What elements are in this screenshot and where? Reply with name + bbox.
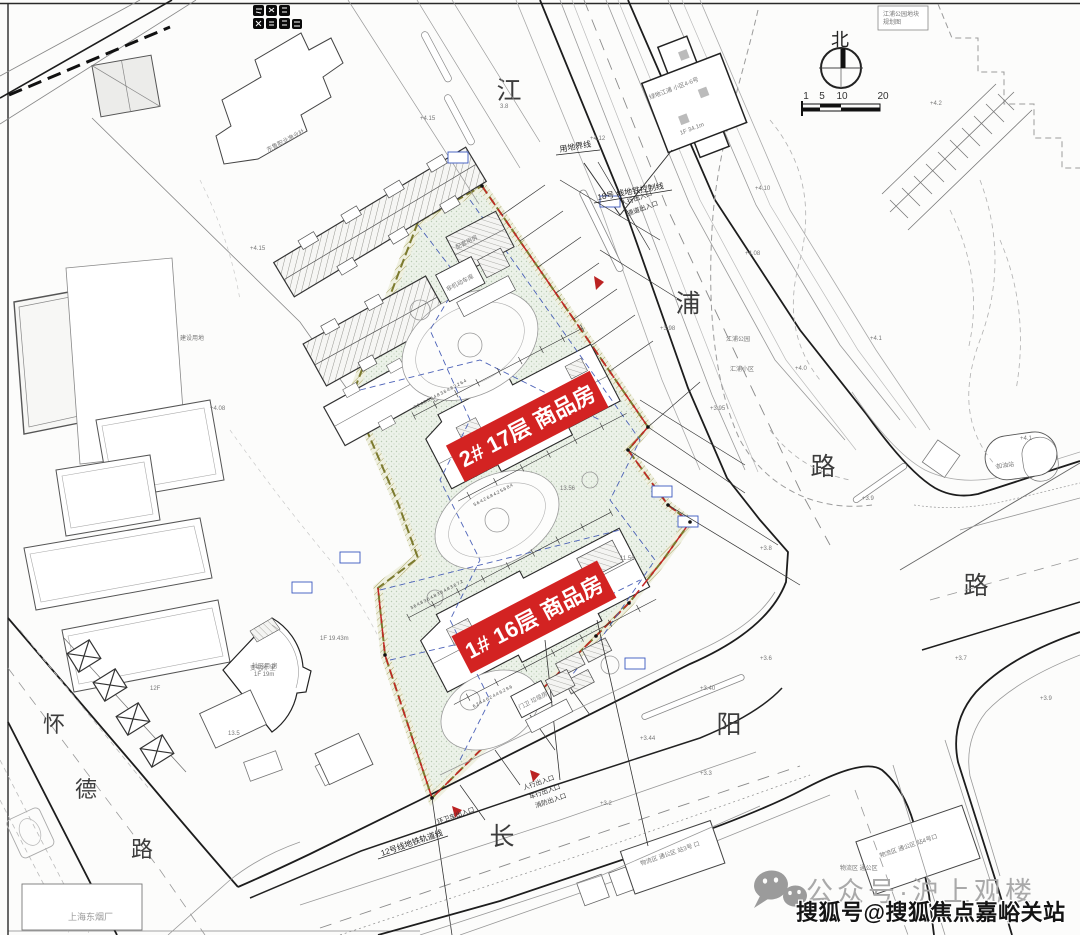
svg-text:+3.98: +3.98 (660, 326, 676, 332)
svg-text:+3.44: +3.44 (640, 736, 656, 742)
svg-text:+3.6: +3.6 (760, 656, 773, 662)
svg-text:10: 10 (836, 91, 848, 102)
svg-text:+4.0: +4.0 (795, 366, 808, 372)
svg-text:江浦公园: 江浦公园 (726, 335, 750, 343)
svg-text:5: 5 (819, 91, 825, 102)
svg-text:+4.10: +4.10 (755, 186, 771, 192)
svg-text:+3.3: +3.3 (700, 771, 713, 777)
svg-text:路: 路 (963, 572, 988, 600)
svg-text:+3.7: +3.7 (955, 656, 968, 662)
svg-text:1: 1 (803, 91, 809, 102)
svg-text:德: 德 (75, 777, 97, 802)
svg-text:搜狐号@搜狐焦点嘉峪关站: 搜狐号@搜狐焦点嘉峪关站 (796, 900, 1065, 925)
svg-text:汇浦小区: 汇浦小区 (730, 365, 754, 373)
svg-text:怀: 怀 (43, 712, 65, 737)
svg-text:变电所 里: 变电所 里 (250, 664, 276, 672)
svg-text:建设用地: 建设用地 (180, 334, 204, 342)
svg-text:+3.8: +3.8 (760, 546, 773, 552)
svg-text:+3.2: +3.2 (600, 801, 613, 807)
svg-text:+3.40: +3.40 (700, 686, 716, 692)
svg-text:物流区 通公区: 物流区 通公区 (840, 864, 878, 872)
svg-text:路: 路 (810, 453, 835, 481)
svg-text:1F 19m: 1F 19m (254, 672, 274, 678)
svg-text:江: 江 (496, 77, 521, 105)
svg-text:江浦公园地块: 江浦公园地块 (883, 10, 919, 18)
svg-text:浦: 浦 (675, 290, 700, 318)
svg-text:+4.08: +4.08 (210, 406, 226, 412)
svg-text:路: 路 (131, 837, 153, 862)
svg-text:3.8: 3.8 (500, 104, 509, 110)
svg-text:上海东烟厂: 上海东烟厂 (68, 911, 113, 922)
svg-text:+4.08: +4.08 (745, 251, 761, 257)
svg-text:+4.15: +4.15 (250, 246, 266, 252)
svg-text:长: 长 (489, 823, 514, 851)
svg-text:13.5: 13.5 (228, 731, 240, 737)
svg-text:12F: 12F (150, 686, 161, 692)
svg-text:规划图: 规划图 (883, 18, 901, 26)
svg-text:+3.9: +3.9 (862, 496, 875, 502)
svg-text:1F 19.43m: 1F 19.43m (320, 636, 349, 642)
svg-text:阳: 阳 (716, 712, 741, 739)
svg-text:+3.95: +3.95 (710, 406, 726, 412)
svg-text:+4.12: +4.12 (590, 136, 606, 142)
svg-text:+4.1: +4.1 (1020, 436, 1033, 442)
svg-text:11.56: 11.56 (620, 556, 635, 562)
svg-text:+3.9: +3.9 (1040, 696, 1053, 702)
svg-text:北: 北 (831, 30, 849, 50)
svg-text:13.56: 13.56 (560, 486, 576, 492)
svg-text:+4.15: +4.15 (420, 116, 436, 122)
svg-text:20: 20 (877, 91, 889, 102)
svg-text:+4.1: +4.1 (870, 336, 883, 342)
svg-text:+4.2: +4.2 (930, 101, 943, 107)
